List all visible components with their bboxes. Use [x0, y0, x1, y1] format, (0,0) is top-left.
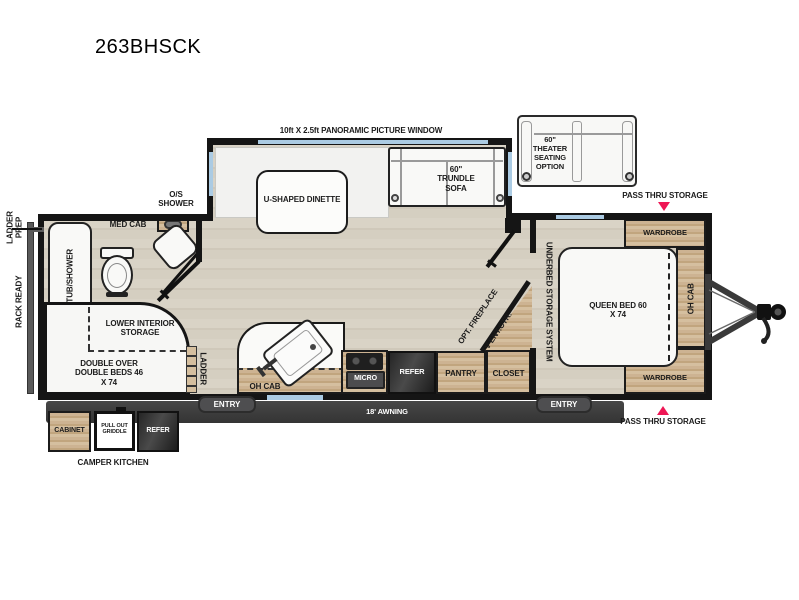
wardrobe-bottom-label: WARDROBE: [624, 374, 706, 383]
queen-bed-foot-dashed: [668, 253, 670, 361]
theater-cupholder-left-icon: [522, 172, 531, 181]
theater-console: [572, 121, 582, 182]
camper-refer-label: REFER: [137, 427, 179, 435]
pass-thru-top-arrow-icon: [658, 202, 670, 211]
pass-thru-bottom-label: PASS THRU STORAGE: [608, 417, 718, 426]
closet-label: CLOSET: [486, 369, 531, 378]
underbed-storage-label: UNDERBED STORAGE SYSTEM: [544, 227, 553, 377]
wall-top-bedroom: [506, 213, 712, 220]
double-beds-label: DOUBLE OVER DOUBLE BEDS 46 X 74: [74, 359, 144, 387]
kitchen-oh-cab-label: OH CAB: [240, 382, 290, 391]
sofa-armrest-line-right: [493, 149, 495, 205]
panoramic-window: [258, 140, 488, 144]
bedroom-window: [556, 215, 604, 219]
ladder-prep-label: LADDER PREP: [6, 209, 25, 245]
slide-window-right: [508, 152, 512, 196]
rack-ready-label: RACK READY: [14, 266, 23, 338]
camper-griddle-tab: [116, 407, 126, 413]
stove-burners-icon: [346, 353, 383, 370]
theater-seating-label: 60" THEATER SEATING OPTION: [527, 136, 573, 171]
sofa-leg-right: [496, 194, 504, 202]
bath-wall-stub: [196, 220, 202, 262]
dinette-label: U-SHAPED DINETTE: [262, 195, 342, 204]
refrigerator-label: REFER: [388, 368, 436, 377]
wall-bottom: [38, 394, 712, 400]
sink-drain-icon: [310, 344, 316, 350]
slide-window-left: [209, 152, 213, 196]
microwave-label: MICRO: [346, 375, 385, 383]
page-title: 263BHSCK: [95, 36, 201, 59]
queen-bed-label: QUEEN BED 60 X 74: [588, 301, 648, 320]
bedroom-wall-lower: [530, 348, 536, 394]
toilet-seat: [107, 263, 127, 288]
pass-thru-top-label: PASS THRU STORAGE: [610, 191, 720, 200]
pass-thru-bottom-arrow-icon: [657, 406, 669, 415]
med-cab-label: MED CAB: [104, 220, 152, 229]
pantry-label: PANTRY: [436, 369, 486, 378]
os-shower-label: O/S SHOWER: [152, 190, 200, 209]
bunk-dashed-divider-vertical: [88, 307, 90, 350]
lower-interior-storage-label: LOWER INTERIOR STORAGE: [94, 319, 186, 338]
toilet-base: [106, 292, 128, 297]
bunk-dashed-divider-horizontal: [88, 350, 186, 352]
camper-griddle-label: PULL OUT GRIDDLE: [96, 423, 133, 436]
sofa-armrest-line-left: [400, 149, 402, 205]
wall-rear-left: [38, 214, 44, 400]
sofa-leg-left: [391, 194, 399, 202]
camper-kitchen-label: CAMPER KITCHEN: [68, 458, 158, 467]
entry-left-label: ENTRY: [200, 400, 254, 409]
rear-rack-rail: [27, 222, 34, 394]
bunk-ladder-label: LADDER: [198, 346, 207, 392]
camper-cabinet-label: CABINET: [48, 427, 91, 435]
kitchen-window: [267, 395, 323, 400]
bedroom-wall-upper: [530, 219, 536, 253]
floorplan-canvas: 263BHSCK U-SHAPED DINETTE 60" TRUNDLE SO…: [0, 0, 799, 600]
bedroom-oh-cab-label: OH CAB: [686, 269, 695, 329]
wardrobe-top-label: WARDROBE: [624, 229, 706, 238]
entry-door-left: ENTRY: [198, 396, 256, 413]
entry-right-label: ENTRY: [538, 400, 590, 409]
theater-cupholder-right-icon: [625, 172, 634, 181]
hitch-tongue: [703, 266, 795, 358]
awning-label: 18' AWNING: [322, 408, 452, 417]
trundle-sofa-label: 60" TRUNDLE SOFA: [430, 165, 482, 193]
bunk-ladder-icon: [186, 346, 197, 393]
panoramic-window-label: 10ft X 2.5ft PANORAMIC PICTURE WINDOW: [231, 126, 491, 135]
entry-door-right: ENTRY: [536, 396, 592, 413]
